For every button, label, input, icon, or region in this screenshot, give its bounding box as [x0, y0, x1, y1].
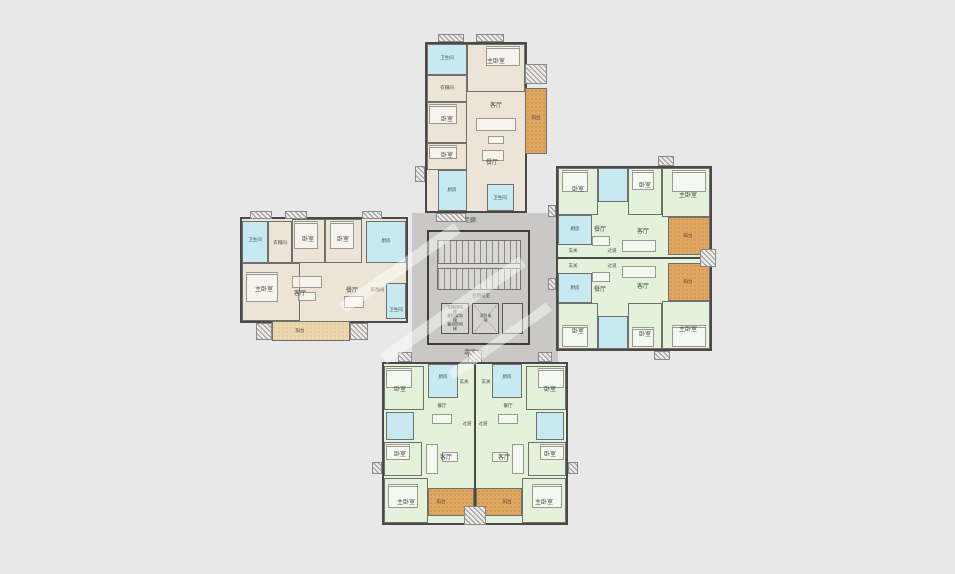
room-label: 过道	[607, 264, 616, 269]
room-label: 厨房	[570, 286, 579, 291]
room-label: 主卧室	[535, 500, 553, 506]
room-label: 玄关	[481, 380, 490, 385]
elevator-fire: 消防电梯	[472, 303, 499, 334]
room-label: 卫生间	[248, 238, 262, 243]
floor-plan: 走廊 合用前室 无障碍电梯 兼担架电梯 兼消防电梯 消防电梯 走廊 卫生间 衣帽…	[0, 0, 955, 574]
east2-bathroom	[598, 316, 628, 349]
room-label: 过道	[462, 422, 471, 427]
room-label: 衣帽间	[273, 241, 287, 246]
ac-platform-hatch	[548, 278, 556, 290]
room-label: 客厅	[637, 229, 649, 235]
west-balcony	[272, 321, 350, 341]
room-label: 卫生间	[389, 308, 403, 313]
dining-table	[432, 414, 452, 424]
room-label: 卧室	[441, 153, 453, 159]
room-label: 客厅	[294, 291, 306, 297]
south1-bathroom	[386, 412, 414, 440]
room-label: 餐厅	[503, 404, 512, 409]
ac-platform-hatch	[464, 506, 486, 525]
room-label: 厨房	[438, 375, 447, 380]
core-lobby-label: 合用前室	[472, 294, 490, 299]
room-label: 卧室	[639, 332, 651, 338]
ac-platform-hatch	[654, 351, 670, 360]
room-label: 主卧室	[679, 327, 697, 333]
ac-platform-hatch	[525, 64, 547, 84]
ac-platform-hatch	[415, 166, 425, 182]
ac-platform-hatch	[256, 323, 272, 340]
room-label: 卧室	[639, 183, 651, 189]
room-label: 阳台	[531, 116, 540, 121]
dining-table	[498, 414, 518, 424]
sofa	[292, 276, 322, 288]
room-label: 卧室	[544, 387, 556, 393]
room-label: 卧室	[572, 187, 584, 193]
south1-kitchen	[428, 364, 458, 398]
ac-platform-hatch	[700, 249, 716, 267]
ac-platform-hatch	[372, 462, 382, 474]
elevator-accessible: 无障碍电梯 兼担架电梯 兼消防电梯	[441, 303, 469, 334]
room-label: 阳台	[295, 329, 304, 334]
room-label: 主卧室	[255, 287, 273, 293]
bed	[386, 368, 412, 388]
elevator-fire-label: 消防电梯	[477, 314, 494, 323]
sofa	[426, 444, 438, 474]
stair-landing	[438, 263, 520, 269]
room-label: 卧室	[394, 452, 406, 458]
south2-kitchen	[492, 364, 522, 398]
coffee-table	[488, 136, 504, 144]
ac-platform-hatch	[285, 211, 307, 219]
room-label: 卧室	[572, 329, 584, 335]
room-label: 餐厅	[437, 404, 446, 409]
core-shaft-room	[502, 303, 523, 334]
room-label: 卧室	[394, 387, 406, 393]
room-label: 主卧室	[397, 500, 415, 506]
room-label: 厨房	[502, 375, 511, 380]
sofa	[512, 444, 524, 474]
room-label: 过道	[607, 249, 616, 254]
room-label: 厨房	[447, 188, 456, 193]
dining-table	[592, 272, 610, 282]
room-label: 玄关	[568, 264, 577, 269]
ac-platform-hatch	[438, 34, 464, 42]
room-label: 过道	[478, 422, 487, 427]
room-label: 客厅	[490, 103, 502, 109]
room-label: 卧室	[302, 237, 314, 243]
room-label: 家政间	[370, 288, 384, 293]
room-label: 衣帽间	[440, 86, 454, 91]
room-label: 卫生间	[493, 196, 507, 201]
sofa	[622, 266, 656, 278]
bed	[330, 221, 354, 249]
room-label: 阳台	[436, 500, 445, 505]
sofa	[622, 240, 656, 252]
room-label: 卫生间	[440, 56, 454, 61]
staircase	[437, 240, 521, 290]
east1-bathroom	[598, 168, 628, 202]
room-label: 阳台	[683, 234, 692, 239]
room-label: 卧室	[544, 452, 556, 458]
room-label: 玄关	[459, 380, 468, 385]
room-label: 厨房	[381, 239, 390, 244]
ac-platform-hatch	[250, 211, 272, 219]
room-label: 客厅	[637, 284, 649, 290]
ac-platform-hatch	[398, 352, 412, 362]
ac-platform-hatch	[538, 352, 552, 362]
ac-platform-hatch	[568, 462, 578, 474]
room-label: 客厅	[440, 455, 452, 461]
ac-platform-hatch	[548, 205, 556, 217]
room-label: 卧室	[441, 117, 453, 123]
bed	[672, 170, 706, 192]
room-label: 餐厅	[594, 227, 606, 233]
ac-platform-hatch	[658, 156, 674, 166]
elevator-accessible-line3: 兼消防电梯	[447, 323, 463, 332]
ac-platform-hatch	[476, 34, 504, 42]
ac-platform-hatch	[436, 213, 466, 222]
dining-table	[592, 236, 610, 246]
bed	[294, 221, 318, 249]
room-label: 阳台	[502, 500, 511, 505]
room-label: 客厅	[498, 455, 510, 461]
room-label: 餐厅	[346, 288, 358, 294]
north-balcony	[525, 88, 547, 154]
room-label: 阳台	[683, 280, 692, 285]
dining-table	[344, 296, 364, 308]
ac-platform-hatch	[362, 211, 382, 219]
room-label: 主卧室	[487, 59, 505, 65]
room-label: 厨房	[570, 227, 579, 232]
room-label: 玄关	[568, 249, 577, 254]
south2-bathroom	[536, 412, 564, 440]
bed	[538, 368, 564, 388]
room-label: 餐厅	[594, 287, 606, 293]
room-label: 餐厅	[486, 160, 498, 166]
sofa	[476, 118, 516, 131]
west-bathroom-2	[386, 283, 406, 319]
party-wall	[556, 257, 712, 259]
room-label: 卧室	[337, 237, 349, 243]
room-label: 主卧室	[679, 193, 697, 199]
ac-platform-hatch	[350, 323, 368, 340]
